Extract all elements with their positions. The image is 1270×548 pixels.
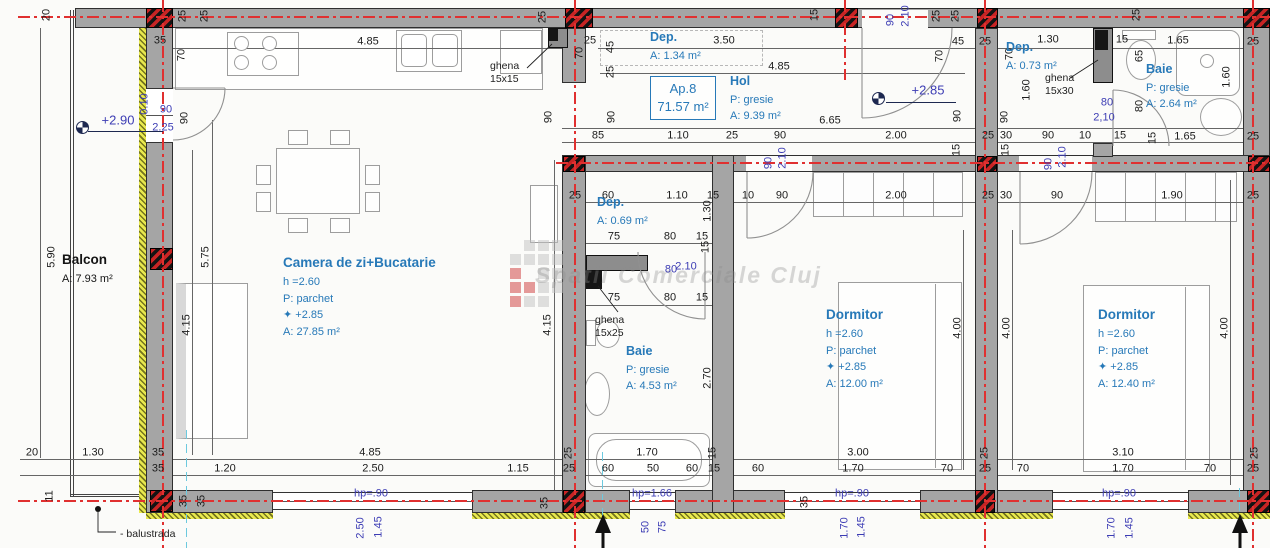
dim-label: 25 bbox=[606, 66, 617, 78]
dim-label: 60 bbox=[686, 464, 698, 475]
dim-label: 80 bbox=[664, 232, 676, 243]
dim-label: 2,10 bbox=[1093, 113, 1114, 124]
section-arrow bbox=[595, 514, 611, 533]
room-detail: 15x25 bbox=[595, 327, 624, 340]
dim-label: 2.50 bbox=[356, 517, 367, 538]
dim-label: 80 bbox=[664, 293, 676, 304]
dim-label: 30 bbox=[1000, 131, 1012, 142]
room-detail: h =2.60 bbox=[826, 326, 883, 343]
room-label-dormitor-1: Dormitorh =2.60P: parchet✦ +2.85A: 12.00… bbox=[826, 305, 883, 392]
room-label-hol: HolP: gresieA: 9.39 m² bbox=[730, 72, 781, 125]
dim-label: 15 bbox=[708, 464, 720, 475]
room-label-balustrada: - balustrada bbox=[120, 528, 175, 541]
dim-label: 1.20 bbox=[214, 464, 235, 475]
dim-label: 25 bbox=[979, 464, 991, 475]
dim-label: 2.70 bbox=[703, 367, 714, 388]
dim-label: 35 bbox=[154, 36, 166, 47]
dim-label: 20 bbox=[26, 448, 38, 459]
room-name: ghena bbox=[1045, 72, 1074, 85]
dim-label: 35 bbox=[800, 496, 811, 508]
dim-label: 90 bbox=[774, 131, 786, 142]
dim-label: 25 bbox=[982, 131, 994, 142]
dim-label: 15 bbox=[701, 241, 712, 253]
dim-label: 90 bbox=[886, 14, 897, 26]
dim-label: 1.70 bbox=[1107, 517, 1118, 538]
dim-label: +2.85 bbox=[912, 84, 945, 97]
dim-label: 80 bbox=[1101, 98, 1113, 109]
section-arrow bbox=[1232, 514, 1248, 533]
room-detail: P: parchet bbox=[283, 291, 436, 308]
dim-label: 4.15 bbox=[543, 314, 554, 335]
room-detail: A: 27.85 m² bbox=[283, 324, 436, 341]
dim-label: 70 bbox=[575, 47, 586, 59]
dim-label: 3.50 bbox=[713, 36, 734, 47]
dim-label: 15 bbox=[696, 293, 708, 304]
dim-label: 1.65 bbox=[1174, 132, 1195, 143]
dim-label: 1.15 bbox=[507, 464, 528, 475]
dim-label: 75 bbox=[608, 232, 620, 243]
room-detail: h =2.60 bbox=[1098, 326, 1155, 343]
dim-label: 25 bbox=[563, 464, 575, 475]
dim-label: 3.10 bbox=[1112, 448, 1133, 459]
dim-label: 25 bbox=[569, 191, 581, 202]
dim-label: 1.60 bbox=[1022, 79, 1033, 100]
room-name: Baie bbox=[626, 342, 677, 361]
dim-label: 1.10 bbox=[666, 191, 687, 202]
dim-label: 30 bbox=[1000, 191, 1012, 202]
dim-label: 2.10 bbox=[778, 147, 789, 168]
dim-label: 25 bbox=[951, 10, 962, 22]
dim-label: 4.85 bbox=[359, 448, 380, 459]
dim-label: 25 bbox=[1247, 132, 1259, 143]
dim-label: 90 bbox=[1042, 131, 1054, 142]
room-name: Camera de zi+Bucatarie bbox=[283, 253, 436, 273]
room-detail: A: 1.34 m² bbox=[650, 48, 701, 65]
dim-label: 15 bbox=[708, 447, 719, 459]
room-label-dep-2: Dep.A: 0.69 m² bbox=[597, 193, 648, 229]
section-arrow-stem bbox=[1239, 533, 1242, 548]
room-detail: 15x15 bbox=[490, 73, 519, 86]
dim-label: 35 bbox=[540, 497, 551, 509]
dim-label: 90 bbox=[953, 110, 964, 122]
dim-label: 2.10 bbox=[1058, 146, 1069, 167]
dim-label: 1.70 bbox=[842, 464, 863, 475]
dim-label: 25 bbox=[1247, 464, 1259, 475]
leader-line bbox=[527, 44, 552, 68]
dim-label: 1.45 bbox=[374, 516, 385, 537]
dim-label: 15 bbox=[952, 144, 963, 156]
dim-label: 15 bbox=[1116, 35, 1128, 46]
dim-label: 1.10 bbox=[667, 131, 688, 142]
dim-label: 10 bbox=[742, 191, 754, 202]
room-detail: ✦ +2.85 bbox=[283, 307, 436, 324]
dim-label: 70 bbox=[935, 50, 946, 62]
room-detail: P: gresie bbox=[1146, 80, 1197, 97]
dim-label: 90 bbox=[1051, 191, 1063, 202]
dim-label: 1.65 bbox=[1167, 36, 1188, 47]
dim-label: 4.85 bbox=[357, 37, 378, 48]
dim-label: 20 bbox=[42, 9, 53, 21]
dim-label: 90 bbox=[1000, 111, 1011, 123]
dim-label: 80 bbox=[1135, 100, 1146, 112]
dim-label: 1.70 bbox=[636, 448, 657, 459]
room-name: Dep. bbox=[1006, 38, 1057, 57]
dim-label: 25 bbox=[979, 37, 991, 48]
dim-label: 5.90 bbox=[47, 246, 58, 267]
dim-label: 35 bbox=[152, 464, 164, 475]
dim-label: +2.90 bbox=[102, 114, 135, 127]
dim-label: 50 bbox=[647, 464, 659, 475]
room-detail: A: 7.93 m² bbox=[62, 271, 113, 288]
dim-label: 25 bbox=[1247, 191, 1259, 202]
room-detail: h =2.60 bbox=[283, 274, 436, 291]
dim-label: 1.30 bbox=[703, 200, 714, 221]
room-detail: A: 4.53 m² bbox=[626, 378, 677, 395]
dim-label: 25 bbox=[178, 10, 189, 22]
dim-label: 0.10 bbox=[140, 93, 151, 114]
dim-label: 3.00 bbox=[847, 448, 868, 459]
dim-label: 25 bbox=[1132, 9, 1143, 21]
dim-label: 1.90 bbox=[1161, 191, 1182, 202]
dim-label: hp=.90 bbox=[354, 489, 388, 500]
dim-label: 1.70 bbox=[840, 517, 851, 538]
room-label-ghena-3: ghena15x25 bbox=[595, 314, 624, 339]
dim-label: 90 bbox=[1044, 158, 1055, 170]
room-detail: 15x30 bbox=[1045, 85, 1074, 98]
dim-label: 15 bbox=[1148, 132, 1159, 144]
leader-line bbox=[98, 511, 116, 532]
door-arc bbox=[1020, 172, 1092, 244]
room-name: Dep. bbox=[597, 193, 648, 212]
room-detail: P: gresie bbox=[730, 92, 781, 109]
level-marker-icon bbox=[76, 121, 89, 134]
room-detail: A: 2.64 m² bbox=[1146, 96, 1197, 113]
dim-label: 25 bbox=[980, 447, 991, 459]
dim-label: 25 bbox=[932, 10, 943, 22]
room-name: Dormitor bbox=[826, 305, 883, 325]
dim-label: 15 bbox=[696, 232, 708, 243]
dim-label: 50 bbox=[641, 521, 652, 533]
dim-label: 90 bbox=[180, 112, 191, 124]
dim-label: 15 bbox=[1114, 131, 1126, 142]
dim-label: 35 bbox=[197, 495, 208, 507]
dim-label: 10 bbox=[1079, 131, 1091, 142]
dim-label: hp=1.66 bbox=[632, 489, 672, 500]
room-label-dep-1: Dep.A: 1.34 m² bbox=[650, 28, 701, 64]
apartment-area: 71.57 m² bbox=[651, 98, 715, 116]
room-label-dormitor-2: Dormitorh =2.60P: parchet✦ +2.85A: 12.40… bbox=[1098, 305, 1155, 392]
dim-label: 35 bbox=[152, 448, 164, 459]
dim-label: 25 bbox=[1250, 447, 1261, 459]
section-arrow-stem bbox=[602, 533, 605, 548]
dim-label: 60 bbox=[752, 464, 764, 475]
dim-label: 4.15 bbox=[182, 314, 193, 335]
room-name: Balcon bbox=[62, 250, 113, 270]
dim-label: 4.00 bbox=[1002, 317, 1013, 338]
room-detail: A: 12.00 m² bbox=[826, 376, 883, 393]
room-label-ghena-1: ghena15x15 bbox=[490, 60, 519, 85]
dim-label: 60 bbox=[602, 464, 614, 475]
dim-label: 4.00 bbox=[953, 317, 964, 338]
dim-label: 1.30 bbox=[82, 448, 103, 459]
dim-label: 1.60 bbox=[1222, 66, 1233, 87]
room-detail: A: 12.40 m² bbox=[1098, 376, 1155, 393]
dim-label: 25 bbox=[538, 11, 549, 23]
room-name: Hol bbox=[730, 72, 781, 91]
dim-label: 90 bbox=[776, 191, 788, 202]
room-detail: ✦ +2.85 bbox=[1098, 359, 1155, 376]
dim-label: 4.85 bbox=[768, 62, 789, 73]
dim-label: 25 bbox=[564, 447, 575, 459]
dim-label: 4.00 bbox=[1220, 317, 1231, 338]
dim-label: 25 bbox=[726, 131, 738, 142]
dim-label: 6.65 bbox=[819, 116, 840, 127]
section-arrows bbox=[595, 514, 1248, 548]
dim-label: 2.10 bbox=[675, 262, 696, 273]
level-marker-icon bbox=[872, 92, 885, 105]
dim-label: 5.75 bbox=[201, 246, 212, 267]
room-detail: P: parchet bbox=[1098, 343, 1155, 360]
dim-label: hp=.90 bbox=[1102, 489, 1136, 500]
room-detail: P: gresie bbox=[626, 362, 677, 379]
dim-label: 45 bbox=[606, 41, 617, 53]
room-detail: ✦ +2.85 bbox=[826, 359, 883, 376]
room-label-ghena-2: ghena15x30 bbox=[1045, 72, 1074, 97]
dim-label: 65 bbox=[1135, 50, 1146, 62]
room-detail: P: parchet bbox=[826, 343, 883, 360]
room-label-baie-2: BaieP: gresieA: 2.64 m² bbox=[1146, 60, 1197, 113]
room-detail: A: 0.69 m² bbox=[597, 213, 648, 230]
dim-label: 15 bbox=[1001, 144, 1012, 156]
room-name: ghena bbox=[490, 60, 519, 73]
dim-label: hp=.90 bbox=[835, 489, 869, 500]
room-label-dep-3: Dep.A: 0.73 m² bbox=[1006, 38, 1057, 74]
dim-label: 90 bbox=[764, 157, 775, 169]
dim-label: 2.50 bbox=[362, 464, 383, 475]
dim-label: 25 bbox=[982, 191, 994, 202]
dim-label: 2.00 bbox=[885, 191, 906, 202]
room-label-baie-1: BaieP: gresieA: 4.53 m² bbox=[626, 342, 677, 395]
room-name: - balustrada bbox=[120, 528, 175, 541]
room-name: ghena bbox=[595, 314, 624, 327]
dim-label: 2.00 bbox=[885, 131, 906, 142]
dim-label: 2.25 bbox=[152, 123, 173, 134]
dim-label: 25 bbox=[200, 10, 211, 22]
dim-label: 2.10 bbox=[901, 5, 912, 26]
room-label-balcon: BalconA: 7.93 m² bbox=[62, 250, 113, 288]
dim-label: 90 bbox=[544, 111, 555, 123]
dim-label: 25 bbox=[584, 36, 596, 47]
apartment-number-box: Ap.8 71.57 m² bbox=[650, 76, 716, 120]
dim-label: 1.70 bbox=[1112, 464, 1133, 475]
dim-label: 25 bbox=[1247, 37, 1259, 48]
dim-label: 1.45 bbox=[1125, 517, 1136, 538]
dim-label: 70 bbox=[941, 464, 953, 475]
level-marker-line bbox=[886, 102, 956, 103]
dim-label: 1.45 bbox=[857, 516, 868, 537]
dim-label: 70 bbox=[1017, 464, 1029, 475]
dim-label: 75 bbox=[608, 293, 620, 304]
dim-label: 11 bbox=[45, 490, 56, 501]
dim-label: 90 bbox=[607, 111, 618, 123]
dim-label: 90 bbox=[160, 105, 172, 116]
dim-label: 45 bbox=[952, 37, 964, 48]
dim-label: 70 bbox=[177, 49, 188, 61]
dim-label: 15 bbox=[810, 9, 821, 21]
room-name: Baie bbox=[1146, 60, 1197, 79]
dim-label: 85 bbox=[592, 131, 604, 142]
door-arc bbox=[747, 172, 813, 238]
dim-label: 75 bbox=[658, 521, 669, 533]
floor-plan-canvas: Spatii Comerciale Cluj Ap.8 71.57 m² 202… bbox=[0, 0, 1270, 548]
room-detail: A: 9.39 m² bbox=[730, 108, 781, 125]
room-label-camera-de-zi: Camera de zi+Bucatarieh =2.60P: parchet✦… bbox=[283, 253, 436, 340]
dim-label: 70 bbox=[1204, 464, 1216, 475]
room-name: Dep. bbox=[650, 28, 701, 47]
dim-label: 35 bbox=[179, 495, 190, 507]
apartment-number: Ap.8 bbox=[651, 80, 715, 98]
room-name: Dormitor bbox=[1098, 305, 1155, 325]
